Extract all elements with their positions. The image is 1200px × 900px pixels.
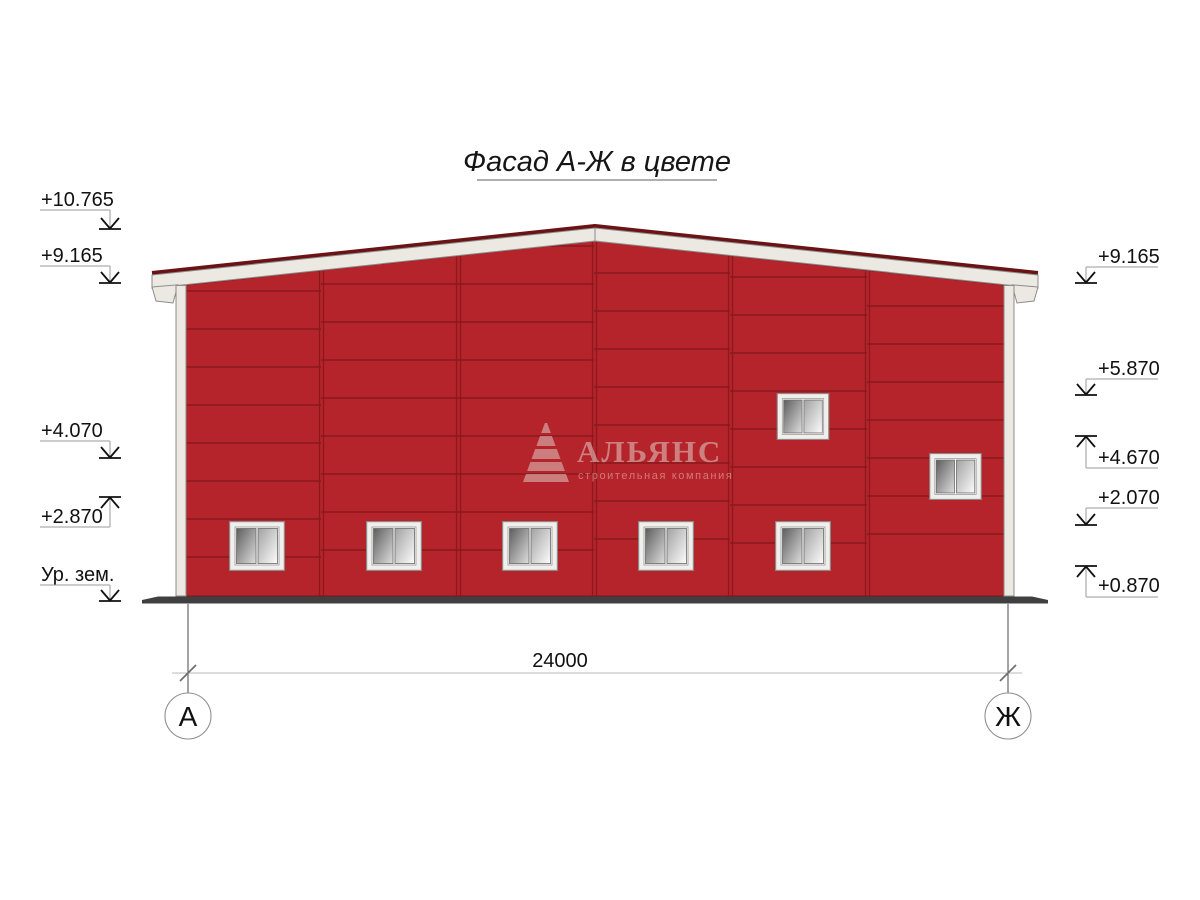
svg-text:Ж: Ж	[995, 701, 1021, 732]
building-elevation: АЛЬЯНС строительная компания	[142, 226, 1048, 604]
axis-bubble-zh: Ж	[985, 693, 1031, 739]
elevation-mark: Ур. зем.	[40, 564, 121, 601]
drawing-sheet: Фасад А-Ж в цвете АЛЬЯНС строительная ко…	[0, 0, 1200, 900]
svg-text:+10.765: +10.765	[41, 189, 114, 211]
facade-wall	[186, 241, 1004, 596]
svg-text:+9.165: +9.165	[41, 245, 103, 267]
elevation-mark: +2.070	[1075, 487, 1160, 525]
svg-text:Ур. зем.: Ур. зем.	[41, 564, 114, 586]
window-upper	[930, 454, 982, 500]
elevation-mark: +0.870	[1075, 566, 1160, 597]
facade-drawing-svg: Фасад А-Ж в цвете АЛЬЯНС строительная ко…	[0, 0, 1200, 900]
window	[776, 522, 831, 571]
dimension-value: 24000	[532, 650, 588, 672]
window	[230, 522, 285, 571]
corner-trim-right	[1004, 286, 1014, 597]
elevation-mark: +2.870	[40, 497, 121, 528]
svg-text:+9.165: +9.165	[1098, 246, 1160, 268]
elevation-mark: +5.870	[1075, 358, 1160, 395]
gutter-end-right	[1012, 285, 1038, 303]
window	[503, 522, 558, 571]
svg-text:+4.670: +4.670	[1098, 447, 1160, 469]
drawing-title: Фасад А-Ж в цвете	[463, 146, 731, 178]
svg-text:+2.070: +2.070	[1098, 487, 1160, 509]
svg-text:+0.870: +0.870	[1098, 575, 1160, 597]
svg-text:+2.870: +2.870	[41, 506, 103, 528]
elevation-marks-right: +9.165 +5.870 +4.670 +2.070 +0.870	[1075, 246, 1160, 597]
ground-line	[142, 597, 1048, 604]
svg-text:А: А	[179, 701, 198, 732]
window-upper	[777, 394, 829, 440]
svg-text:+5.870: +5.870	[1098, 358, 1160, 380]
elevation-mark: +9.165	[1075, 246, 1160, 283]
elevation-mark: +10.765	[40, 189, 121, 229]
corner-trim-left	[176, 286, 186, 597]
svg-text:+4.070: +4.070	[41, 420, 103, 442]
gutter-end-left	[152, 285, 178, 303]
title-block: Фасад А-Ж в цвете	[463, 146, 731, 180]
elevation-mark: +9.165	[40, 245, 121, 283]
window	[639, 522, 694, 571]
watermark-company-name: АЛЬЯНС	[577, 434, 722, 469]
elevation-mark: +4.670	[1075, 436, 1160, 469]
axis-bubble-a: А	[165, 693, 211, 739]
window	[367, 522, 422, 571]
elevation-mark: +4.070	[40, 420, 121, 458]
elevation-marks-left: +10.765 +9.165 +4.070 +2.870 Ур. зем.	[40, 189, 121, 601]
watermark-tagline: строительная компания	[578, 470, 733, 482]
dimension-string: 24000	[172, 604, 1022, 694]
